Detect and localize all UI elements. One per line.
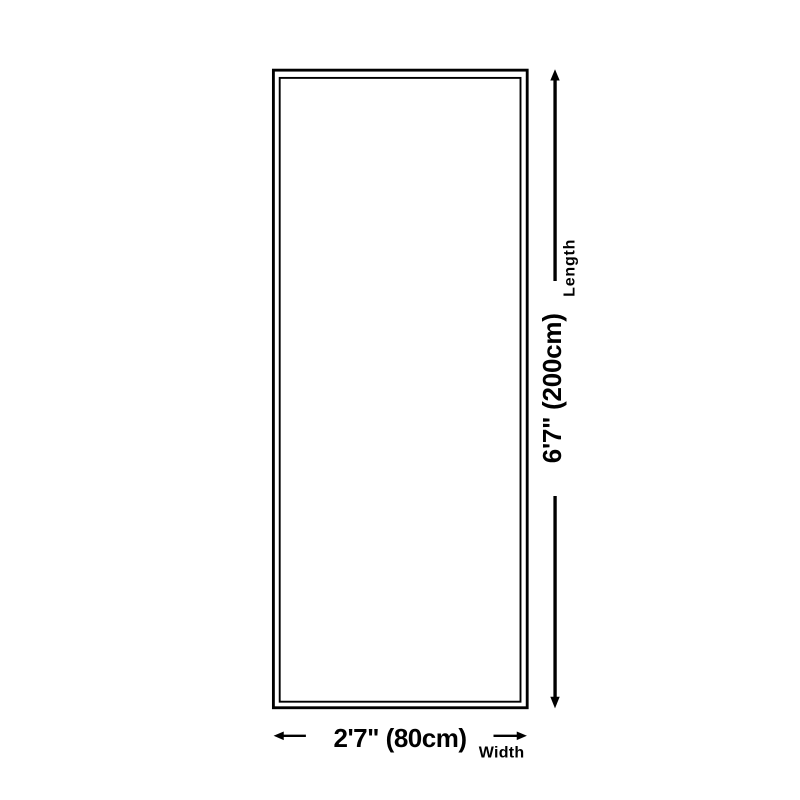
svg-text:Length: Length (561, 239, 578, 297)
svg-text:6'7" (200cm): 6'7" (200cm) (537, 313, 567, 463)
svg-text:2'7" (80cm): 2'7" (80cm) (334, 723, 467, 753)
svg-text:Width: Width (479, 745, 525, 762)
